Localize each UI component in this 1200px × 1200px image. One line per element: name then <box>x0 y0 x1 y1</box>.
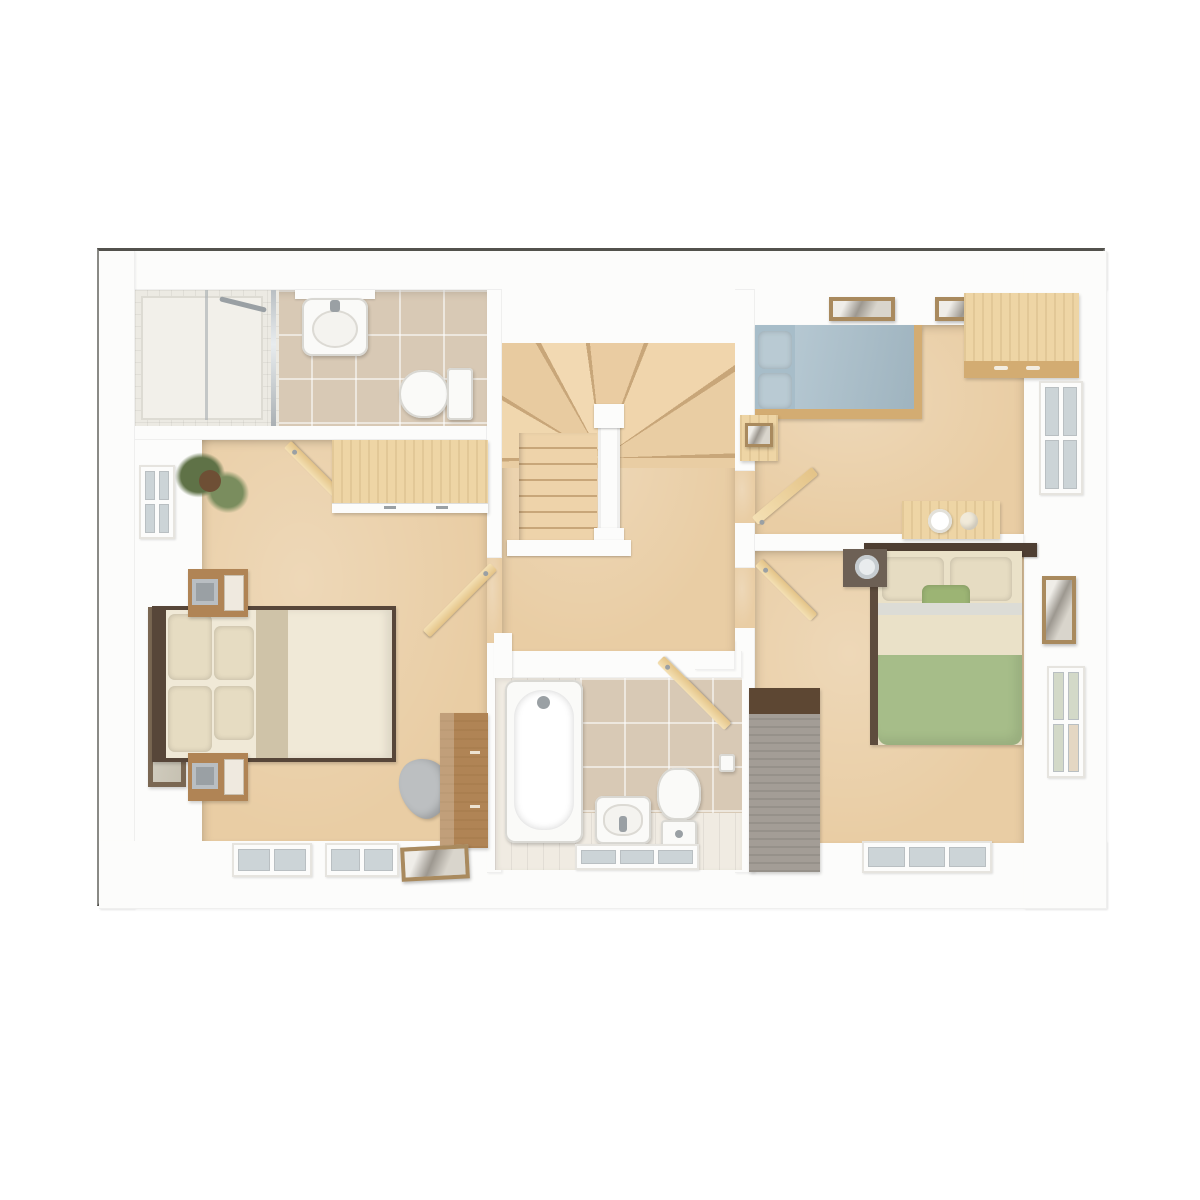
cream-band <box>878 615 1022 655</box>
banister-bottom <box>507 540 631 556</box>
room-master-bedroom <box>135 440 487 873</box>
wardrobe-handle-icon <box>436 506 448 509</box>
floor-plan <box>97 248 1105 906</box>
desk-plate <box>928 509 952 533</box>
ensuite-toilet-cistern <box>447 368 473 420</box>
dresser-handle-icon <box>470 751 480 754</box>
drawer-front <box>224 759 244 795</box>
wall-top <box>99 251 1107 290</box>
shower-tray <box>141 296 263 420</box>
bathroom-window <box>575 844 699 870</box>
room-bedroom-3 <box>755 551 1024 873</box>
bed-pillow <box>758 373 792 409</box>
basin-tap-icon <box>330 300 340 312</box>
newel-post-top <box>594 404 624 428</box>
master-window-left <box>139 465 175 539</box>
wardrobe-handle-icon <box>994 366 1008 370</box>
shower-glass-panel <box>205 290 208 420</box>
bed-headboard <box>156 610 166 758</box>
room-family-bathroom <box>495 678 742 870</box>
bed-pillow <box>758 331 792 369</box>
chest-of-drawers <box>440 713 488 848</box>
bedroom3-nightstand <box>843 549 887 587</box>
dresser-handle-icon <box>470 805 480 808</box>
water-glass-icon <box>855 555 879 579</box>
wardrobe-rail <box>332 503 488 513</box>
bed-pillow <box>214 626 254 680</box>
master-bed <box>152 606 396 762</box>
sheet-band <box>878 603 1022 615</box>
bathtub <box>505 680 583 843</box>
green-duvet <box>878 655 1022 745</box>
stairwell-ceiling <box>502 288 735 343</box>
bed-pillow <box>168 686 212 752</box>
bed-pillow <box>214 686 254 740</box>
wall-ensuite-bedroom <box>135 426 487 440</box>
wardrobe-handle-icon <box>1026 366 1040 370</box>
room-landing-stairs <box>502 288 735 678</box>
basin-bowl <box>312 310 358 348</box>
bedroom3-picture-right <box>1042 576 1076 644</box>
wall-right-column-mid <box>735 523 755 568</box>
sliding-wardrobe <box>332 440 488 513</box>
ensuite-basin <box>302 298 368 356</box>
shower-glass-screen <box>271 290 276 426</box>
flush-button-icon <box>675 830 683 838</box>
bed-pillow <box>168 614 212 680</box>
nightstand-bottom <box>188 753 248 801</box>
bathtub-inner <box>514 690 574 830</box>
bedside-picture <box>745 423 773 447</box>
toilet-roll-holder <box>719 754 735 772</box>
bedroom3-window-bottom <box>862 841 992 873</box>
bedroom2-bedside-unit <box>740 415 778 461</box>
desk-ball <box>960 512 978 530</box>
double-bed-green <box>870 551 1022 745</box>
bed-frame <box>755 409 922 419</box>
bedroom2-picture-1 <box>829 297 895 321</box>
potted-plant <box>165 444 259 530</box>
master-window-bottom-2 <box>325 843 399 877</box>
master-window-bottom-1 <box>232 843 312 877</box>
stair-flight-down <box>519 433 597 545</box>
bed-fold <box>256 610 288 758</box>
table-lamp-icon <box>192 579 218 605</box>
landing-door-stub <box>494 633 512 678</box>
nightstand-top <box>188 569 248 617</box>
bed-frame <box>914 325 922 419</box>
wardrobe-top-slab <box>749 688 820 714</box>
bedroom3-wardrobe <box>749 688 820 872</box>
duvet-fold <box>795 325 915 411</box>
bedroom3-window-right <box>1047 666 1085 778</box>
drawer-front <box>224 575 244 611</box>
bedroom2-wardrobe <box>964 293 1079 378</box>
table-lamp-icon <box>192 763 218 789</box>
bathroom-toilet-seat <box>657 768 701 820</box>
bathtub-drain-icon <box>537 696 550 709</box>
room-ensuite <box>135 290 487 426</box>
screenshot-canvas: { "scene": { "kind": "3d-floor-plan-top-… <box>0 0 1200 1200</box>
wardrobe-front-edge <box>964 361 1079 378</box>
basin-tap-icon <box>619 816 627 832</box>
bed-duvet <box>288 610 392 758</box>
dresser-top <box>440 713 454 848</box>
room-bedroom-2 <box>755 288 1024 534</box>
wardrobe-handle-icon <box>384 506 396 509</box>
plant-pot <box>199 470 221 492</box>
wall-left <box>99 251 135 909</box>
ensuite-toilet-bowl <box>399 370 449 418</box>
bathroom-basin <box>595 796 651 844</box>
single-bed <box>755 325 922 419</box>
doorway-bedroom-3 <box>735 568 755 628</box>
bedroom2-window-right <box>1039 381 1083 495</box>
floor-picture-frame <box>400 844 470 882</box>
wall-left-column-upper <box>487 290 502 558</box>
banister-rail <box>598 408 620 548</box>
bedroom2-desk <box>902 501 1000 539</box>
